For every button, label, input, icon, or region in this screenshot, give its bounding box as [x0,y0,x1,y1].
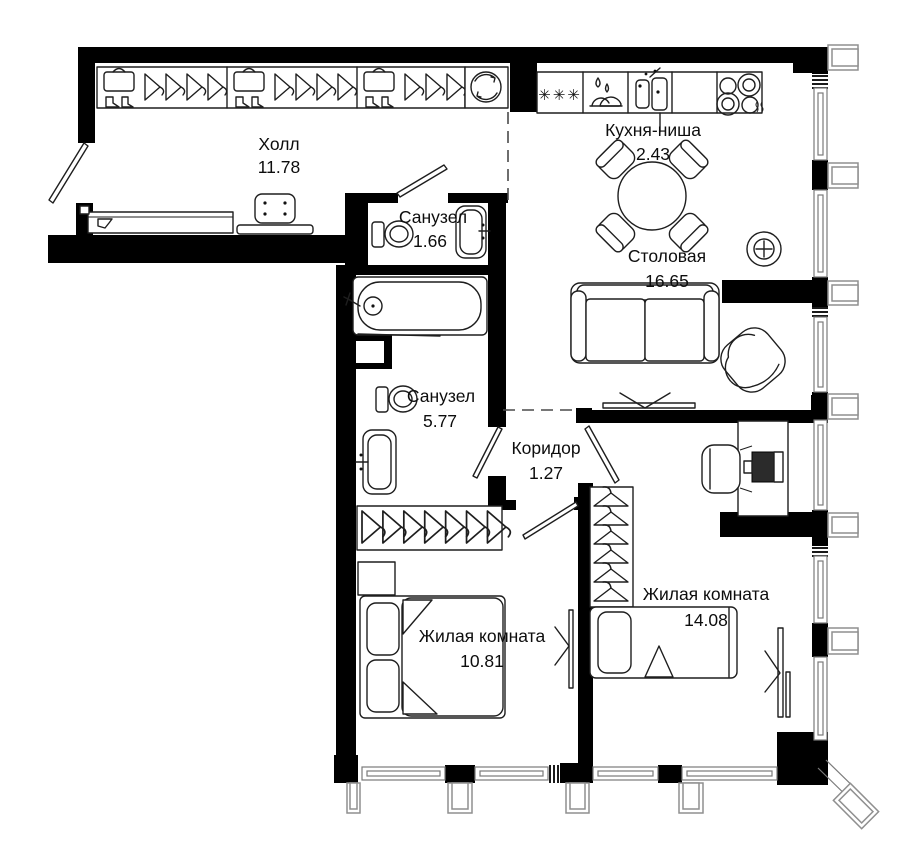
room-name: Жилая комната [419,626,546,646]
room-name: Санузел [399,207,467,227]
window [475,767,548,780]
fridge-icon: ✳✳✳ [538,86,582,104]
room-name: Жилая комната [643,584,770,604]
pilaster [828,45,858,70]
pilaster [679,783,703,813]
desk [702,421,788,516]
hall-console [80,206,233,233]
dining-door-mark [603,393,695,408]
hall-wardrobe [97,67,466,108]
bath-big-door-leaf [473,427,502,478]
room-label-bath-big: Санузел 5.77 [407,386,475,431]
window [814,556,827,623]
room-name: Коридор [511,438,580,458]
room-area: 16.65 [645,271,689,291]
room-name: Холл [258,134,299,154]
room-area: 11.78 [258,157,301,177]
pilaster [448,783,472,813]
window [814,420,827,510]
window [682,767,777,780]
dining-table [618,162,686,230]
room-label-hall: Холл 11.78 [258,134,301,177]
washing-machine-icon [465,67,508,108]
pilaster [828,163,858,188]
pilaster [828,281,858,305]
room-area: 1.66 [413,231,447,251]
pilaster [566,783,589,813]
room-area: 2.43 [636,144,670,164]
room-area: 14.08 [684,610,728,630]
sofa [571,283,719,363]
window [814,88,827,160]
room-name: Столовая [628,246,706,266]
pouf [255,194,295,223]
room-labels: Холл 11.78 Кухня-ниша 2.43 Санузел 1.66 … [258,120,770,671]
bedroom2-door-leaf [585,426,619,483]
vent-symbol [747,232,781,266]
window [362,767,445,780]
floor-plan: ✳✳✳ [0,0,907,862]
room-name: Кухня-ниша [605,120,701,140]
pilaster [828,394,858,419]
window [593,767,658,780]
floor-plan-drawing: ✳✳✳ [0,0,907,862]
bedroom1-door-leaf [523,502,578,539]
sink-icon [356,430,396,494]
window [814,657,827,740]
room-label-corridor: Коридор 1.27 [511,438,580,483]
nightstand [358,562,395,595]
pilaster [347,783,360,813]
window [814,317,827,392]
bedroom1-wardrobe [357,506,510,550]
bench [237,225,313,234]
entrance-door-leaf [49,143,88,203]
room-area: 1.27 [529,463,563,483]
bathtub-icon [344,277,487,336]
room-area: 5.77 [423,411,457,431]
pilaster [828,513,858,537]
bedroom2-wardrobe [590,487,633,607]
pilaster [828,628,858,654]
armchair [711,321,792,402]
bedroom2-balcony-door [765,628,790,717]
bath-small-door-leaf [397,165,447,197]
room-name: Санузел [407,386,475,406]
window [814,190,827,277]
room-area: 10.81 [460,651,504,671]
bedroom1-door-mark [555,610,573,688]
